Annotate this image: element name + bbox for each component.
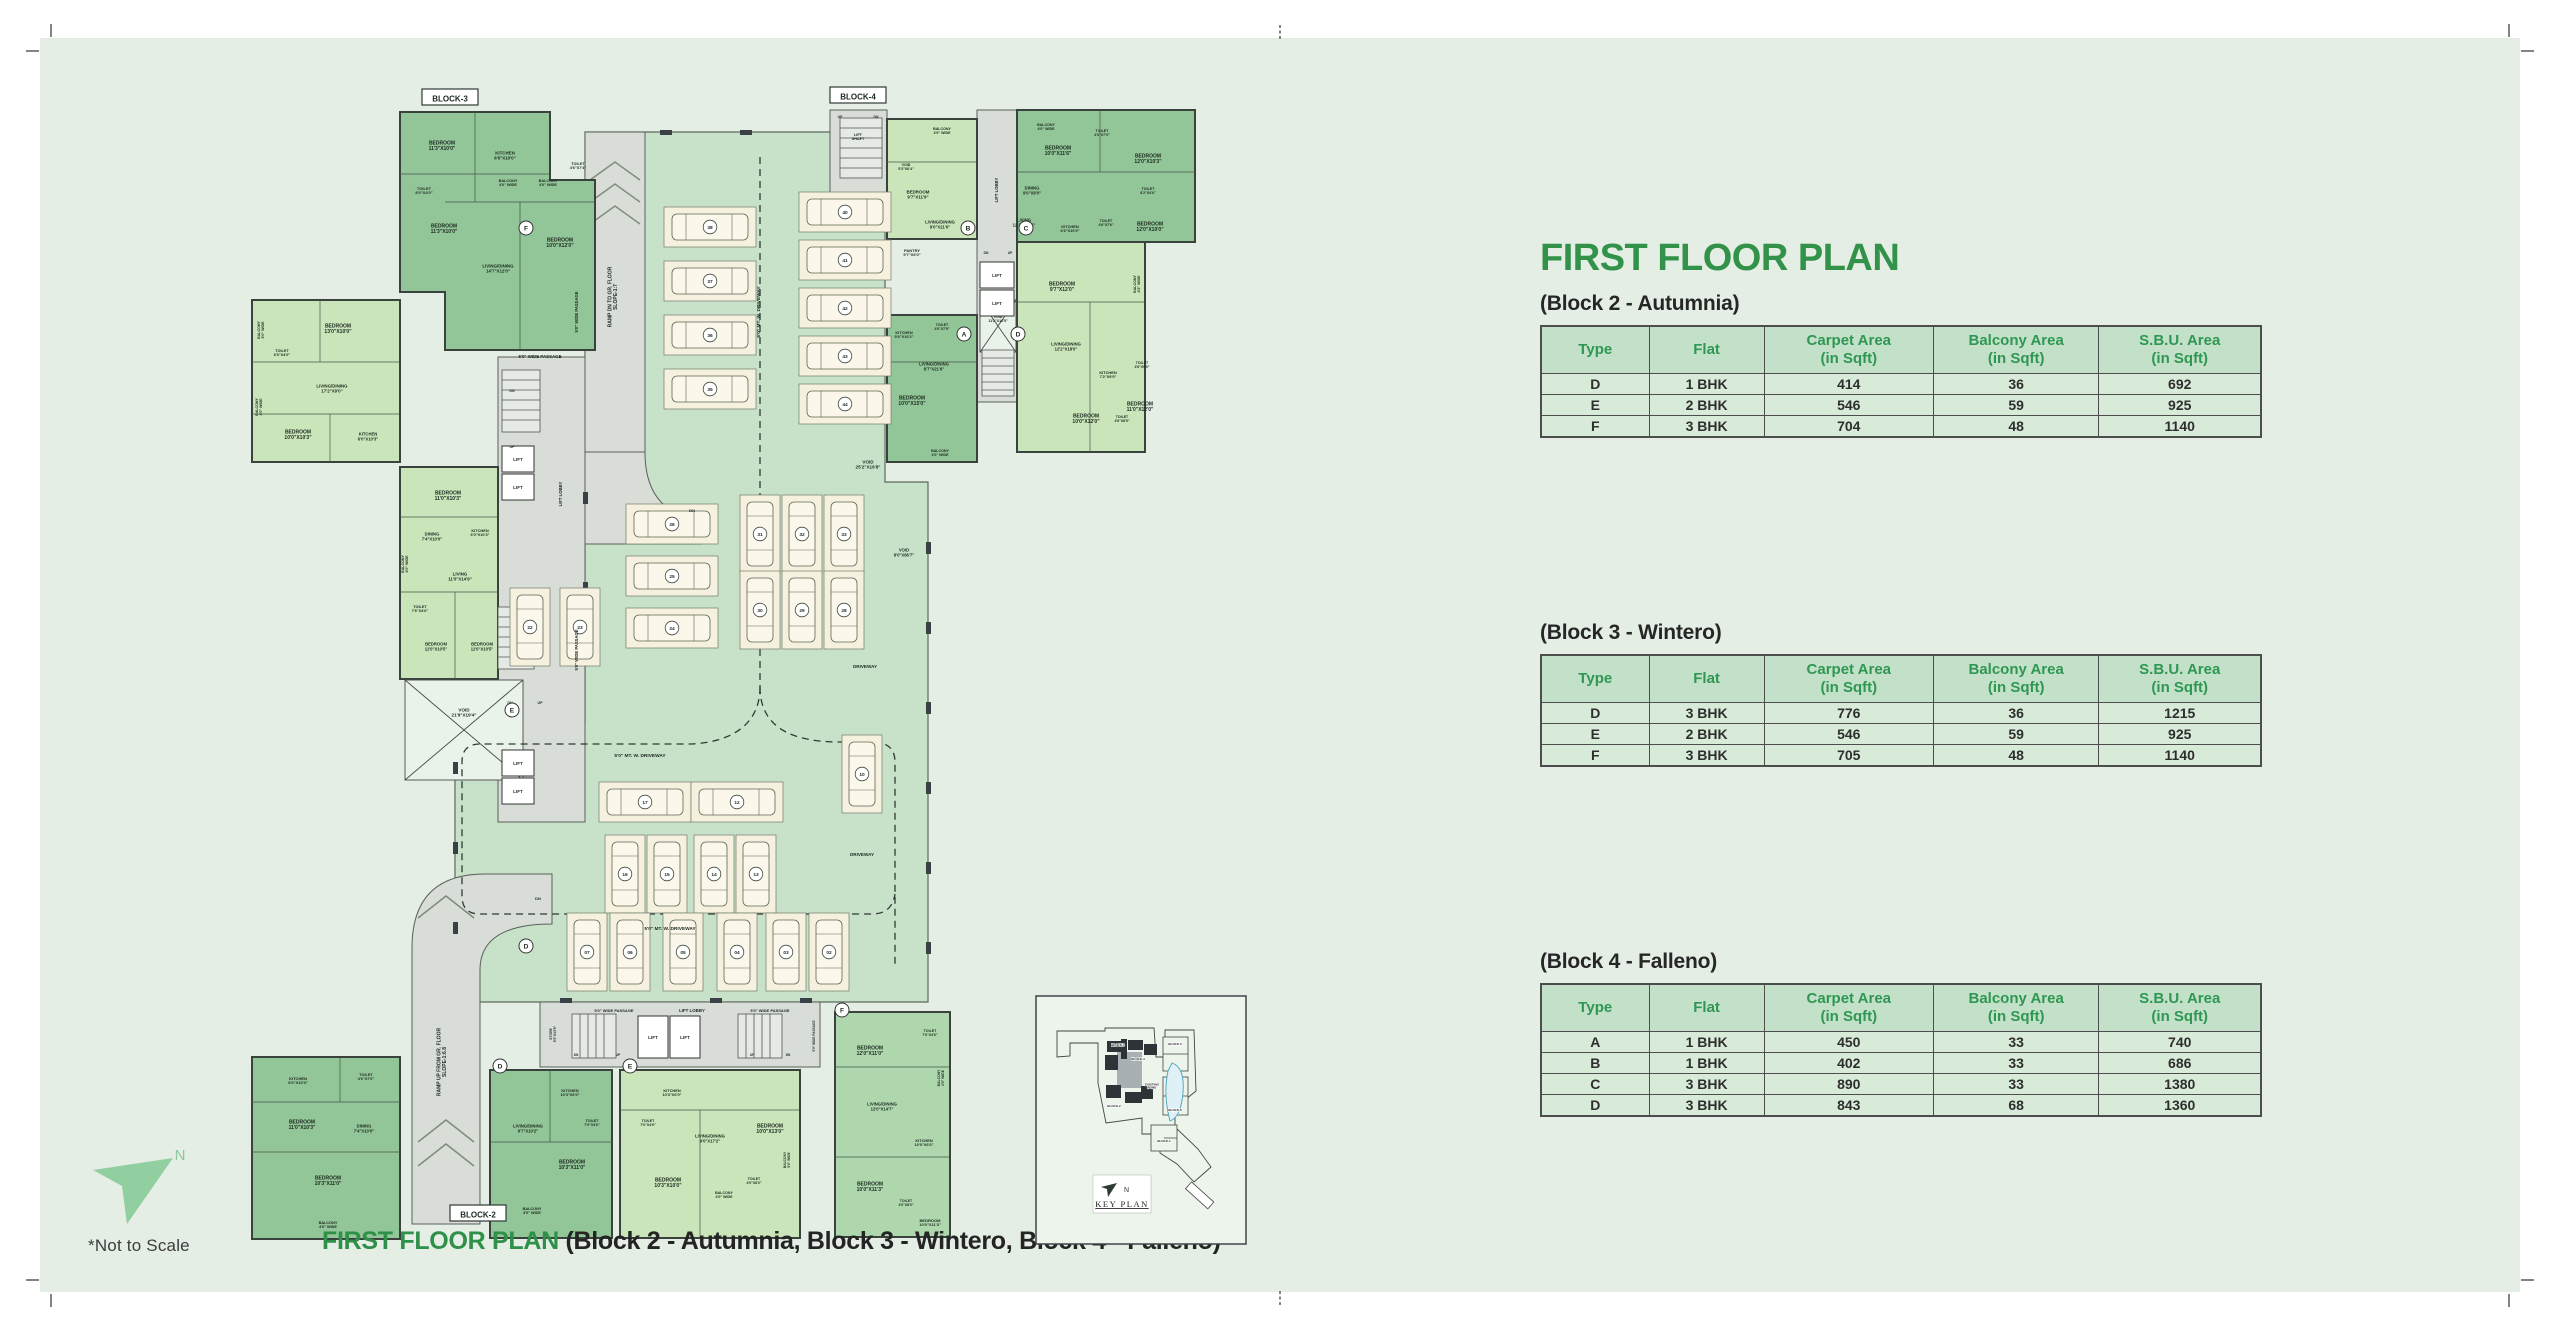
parking-spot-number: 13 bbox=[753, 872, 759, 878]
block3-area-table: TypeFlatCarpet Area (in Sqft)Balcony Are… bbox=[1540, 654, 2262, 767]
plan-label: UP bbox=[538, 701, 544, 705]
plan-label: BEDROOM10'3"X11'0" bbox=[315, 1175, 342, 1187]
plan-label: KITCHEN6'6"X10'0" bbox=[1061, 224, 1080, 233]
table-cell: 1 BHK bbox=[1649, 1032, 1764, 1053]
svg-text:B: B bbox=[966, 225, 971, 232]
unit-type-circle: E bbox=[505, 703, 519, 717]
unit-type-circle: C bbox=[1019, 221, 1033, 235]
north-arrow: N bbox=[85, 1142, 195, 1230]
svg-text:E: E bbox=[628, 1063, 633, 1070]
table-cell: 890 bbox=[1764, 1074, 1933, 1095]
block-tag: BLOCK-4 bbox=[830, 87, 886, 103]
table-cell: 48 bbox=[1933, 416, 2099, 438]
parking-spot: 02 bbox=[809, 913, 849, 991]
plan-label: TOILET4'6"X7'0" bbox=[358, 1073, 375, 1081]
block3-caption: (Block 3 - Wintero) bbox=[1540, 621, 2264, 645]
table-cell: 36 bbox=[1933, 374, 2099, 395]
svg-text:D: D bbox=[524, 943, 529, 950]
table-row: D3 BHK776361215 bbox=[1541, 703, 2261, 724]
parking-spot-number: 32 bbox=[799, 532, 805, 538]
plan-label: BALCONY4'0" WIDE bbox=[933, 127, 951, 135]
table-cell: 3 BHK bbox=[1649, 416, 1764, 438]
table-cell: 740 bbox=[2099, 1032, 2261, 1053]
table-cell: 843 bbox=[1764, 1095, 1933, 1117]
keyplan-label: BLOCK-2 bbox=[1107, 1104, 1121, 1108]
parking-spot-number: 14 bbox=[711, 872, 717, 878]
parking-spot: 40 bbox=[799, 192, 891, 232]
north-label: N bbox=[175, 1147, 186, 1164]
plan-label: TOILET4'6"X7'0" bbox=[1094, 129, 1110, 137]
column-header: Type bbox=[1541, 655, 1649, 703]
parking-spot: 31 bbox=[740, 495, 780, 573]
plan-label: BEDROOM10'3"X10'0" bbox=[654, 1177, 682, 1189]
parking-spot: 44 bbox=[799, 384, 891, 424]
table-cell: 33 bbox=[1933, 1074, 2099, 1095]
column-header: Flat bbox=[1649, 655, 1764, 703]
svg-text:E: E bbox=[510, 707, 515, 714]
table-cell: 59 bbox=[1933, 395, 2099, 416]
plan-label: BEDROOM10'0"X11'3" bbox=[857, 1181, 884, 1193]
parking-spot-number: 03 bbox=[783, 950, 789, 956]
parking-spot: 28 bbox=[824, 571, 864, 649]
column-header: S.B.U. Area (in Sqft) bbox=[2099, 984, 2261, 1032]
north-arrow-glyph bbox=[93, 1158, 173, 1224]
lift-label: LIFT bbox=[513, 761, 523, 766]
parking-spot-number: 22 bbox=[527, 625, 533, 631]
table-cell: 686 bbox=[2099, 1053, 2261, 1074]
plan-label: BEDROOM11'0"X10'5" bbox=[425, 642, 448, 652]
plan-label: BALCONY4'0" WIDE bbox=[255, 398, 263, 416]
parking-spot: 32 bbox=[782, 495, 822, 573]
plan-label: UP bbox=[1008, 251, 1013, 255]
plan-label: 5'0" WIDE PASSAGE bbox=[574, 629, 579, 670]
column-header: Carpet Area (in Sqft) bbox=[1764, 655, 1933, 703]
column-header: Balcony Area (in Sqft) bbox=[1933, 655, 2099, 703]
block4-caption: (Block 4 - Falleno) bbox=[1540, 950, 2264, 974]
table-cell: 1 BHK bbox=[1649, 1053, 1764, 1074]
parking-spot-number: 10 bbox=[859, 772, 865, 778]
table-cell: 36 bbox=[1933, 703, 2099, 724]
keyplan-label: BLOCK-5 bbox=[1168, 1042, 1182, 1046]
plan-label: TOILET7'0"X4'6" bbox=[640, 1119, 656, 1127]
parking-spot-number: 30 bbox=[757, 608, 763, 614]
parking-spot: 12 bbox=[691, 782, 783, 822]
parking-spot-number: 12 bbox=[734, 800, 740, 806]
table-cell: 68 bbox=[1933, 1095, 2099, 1117]
parking-spot-number: 29 bbox=[799, 608, 805, 614]
column-header: Type bbox=[1541, 984, 1649, 1032]
table-cell: 1140 bbox=[2099, 745, 2261, 767]
plan-label: 5'0" WIDE PASSAGE bbox=[574, 291, 579, 332]
plan-label: BALCONY5'0" WIDE bbox=[783, 1151, 791, 1168]
plan-label: BEDROOM10'3"X11'0" bbox=[559, 1159, 586, 1171]
parking-spot: 14 bbox=[694, 835, 734, 913]
parking-spot-number: 36 bbox=[707, 333, 713, 339]
keyplan-label: BLOCK-1 bbox=[1157, 1139, 1171, 1143]
plan-label: LIVING/DINING12'0"X14'7" bbox=[867, 1102, 897, 1112]
table-cell: D bbox=[1541, 703, 1649, 724]
page-title: FIRST FLOOR PLAN bbox=[1540, 237, 2264, 280]
parking-spot-number: 07 bbox=[584, 950, 590, 956]
unit-type-circle: D bbox=[519, 939, 533, 953]
parking-spot-number: 42 bbox=[842, 306, 848, 312]
plan-label: DN bbox=[574, 1053, 579, 1057]
column-header: Balcony Area (in Sqft) bbox=[1933, 984, 2099, 1032]
plan-label: BEDROOM10'0"X10'3" bbox=[284, 429, 312, 441]
keyplan-label: BLOCK-4 bbox=[1131, 1057, 1145, 1061]
table-cell: 925 bbox=[2099, 395, 2261, 416]
table-row: B1 BHK40233686 bbox=[1541, 1053, 2261, 1074]
table-cell: E bbox=[1541, 724, 1649, 745]
parking-spot: 25 bbox=[626, 556, 718, 596]
plan-label: TOILET7'0"X4'6" bbox=[922, 1029, 938, 1037]
keyplan-north-label: N bbox=[1124, 1187, 1129, 1194]
plan-label: BEDROOM11'3"X10'0" bbox=[431, 223, 458, 235]
unit-type-circle: E bbox=[623, 1059, 637, 1073]
plan-label: 5'0" WIDE PASSAGE bbox=[594, 1008, 634, 1013]
table-cell: 705 bbox=[1764, 745, 1933, 767]
plan-label: BEDROOM10'0"X12'0" bbox=[1072, 413, 1100, 425]
parking-spot-number: 38 bbox=[707, 225, 713, 231]
column-header: Flat bbox=[1649, 326, 1764, 374]
table-cell: 1215 bbox=[2099, 703, 2261, 724]
column-header: Flat bbox=[1649, 984, 1764, 1032]
parking-spot-number: 44 bbox=[842, 402, 848, 408]
cluster-block2-d bbox=[490, 1070, 612, 1238]
parking-spot: 29 bbox=[782, 571, 822, 649]
block-tag: BLOCK-2 bbox=[450, 1205, 506, 1221]
plan-label: BEDROOM11'3"X10'0" bbox=[429, 140, 456, 152]
parking-spot-number: 15 bbox=[664, 872, 670, 878]
plan-label: BALCONY4'6" WIDE bbox=[1133, 275, 1141, 293]
plan-label: UP bbox=[838, 115, 843, 119]
parking-spot: 07 bbox=[567, 913, 607, 991]
keyplan-label: BLOCK-3 bbox=[1111, 1043, 1125, 1047]
lift-label: LIFT bbox=[680, 1035, 690, 1040]
parking-spot: 41 bbox=[799, 240, 891, 280]
table-row: E2 BHK54659925 bbox=[1541, 724, 2261, 745]
table-cell: 1 BHK bbox=[1649, 374, 1764, 395]
plan-label: 5'0" MT. W. DRIVEWAY bbox=[614, 753, 666, 759]
table-cell: 704 bbox=[1764, 416, 1933, 438]
table-row: A1 BHK45033740 bbox=[1541, 1032, 2261, 1053]
table-cell: 3 BHK bbox=[1649, 1074, 1764, 1095]
plan-label: BALCONY4'0" WIDE bbox=[715, 1191, 733, 1199]
plan-label: PANTRY9'7"X6'0" bbox=[903, 248, 920, 257]
parking-spot: 42 bbox=[799, 288, 891, 328]
plan-label: LIVING/DINING14'7"X12'0" bbox=[482, 264, 514, 274]
parking-spot: 30 bbox=[740, 571, 780, 649]
lift-label: LIFT bbox=[992, 301, 1002, 306]
parking-spot: 33 bbox=[824, 495, 864, 573]
block2-caption: (Block 2 - Autumnia) bbox=[1540, 292, 2264, 316]
parking-spot: 38 bbox=[664, 207, 756, 247]
plan-label: KITCHEN10'0"X6'6" bbox=[915, 1138, 934, 1147]
plan-label: BEDROOM10'0"X11'6" bbox=[1045, 145, 1072, 157]
cluster-block2-f bbox=[835, 1012, 950, 1237]
plan-label: 5'0" WIDE PASSAGE bbox=[812, 1020, 816, 1051]
table-cell: A bbox=[1541, 1032, 1649, 1053]
parking-spot: 15 bbox=[647, 835, 687, 913]
parking-spot: 23 bbox=[560, 588, 600, 666]
plan-label: BALCONY4'0" WIDE bbox=[523, 1207, 542, 1215]
parking-spot-number: 33 bbox=[841, 532, 847, 538]
parking-spot-number: 02 bbox=[826, 950, 832, 956]
plan-label: TOILET4'6"X7'6" bbox=[1098, 219, 1113, 227]
plan-label: TOILET4'0"X8'0" bbox=[898, 1199, 913, 1207]
parking-spot: 13 bbox=[736, 835, 776, 913]
parking-spot: 26 bbox=[626, 504, 718, 544]
plan-label: BEDROOM11'0"X10'3" bbox=[289, 1119, 316, 1131]
lift-label: LIFT bbox=[648, 1035, 658, 1040]
unit-type-circle: A bbox=[957, 327, 971, 341]
block2-area-table: TypeFlatCarpet Area (in Sqft)Balcony Are… bbox=[1540, 325, 2262, 438]
column-header: Type bbox=[1541, 326, 1649, 374]
plan-label: KITCHEN10'3"X6'0" bbox=[663, 1088, 682, 1097]
plan-label: 5'0" WIDE PASSAGE bbox=[750, 1008, 790, 1013]
plan-label: DN bbox=[689, 508, 695, 513]
svg-text:D: D bbox=[1016, 331, 1021, 338]
svg-text:D: D bbox=[498, 1063, 503, 1070]
block-tag: BLOCK-3 bbox=[422, 89, 478, 105]
table-cell: 414 bbox=[1764, 374, 1933, 395]
plan-label: TOILET8'0"X4'0" bbox=[415, 186, 432, 195]
svg-text:C: C bbox=[1024, 225, 1029, 232]
unit-type-circle: B bbox=[961, 221, 975, 235]
parking-spot-number: 37 bbox=[707, 279, 713, 285]
unit-type-circle: D bbox=[1011, 327, 1025, 341]
table-cell: 1380 bbox=[2099, 1074, 2261, 1095]
unit-type-circle: D bbox=[493, 1059, 507, 1073]
column-header: S.B.U. Area (in Sqft) bbox=[2099, 326, 2261, 374]
table-cell: D bbox=[1541, 1095, 1649, 1117]
block-tag-label: BLOCK-3 bbox=[432, 95, 468, 104]
not-to-scale-note: *Not to Scale bbox=[88, 1236, 190, 1256]
table-cell: 2 BHK bbox=[1649, 395, 1764, 416]
block-tag-label: BLOCK-4 bbox=[840, 93, 876, 102]
table-cell: 3 BHK bbox=[1649, 703, 1764, 724]
plan-label: TOILET7'6"X4'6" bbox=[412, 605, 429, 613]
plan-label: BEDROOM10'0"X12'0" bbox=[546, 237, 574, 249]
parking-spot: 17 bbox=[599, 782, 691, 822]
svg-text:A: A bbox=[962, 331, 967, 338]
plan-label: DN bbox=[786, 1053, 791, 1057]
table-cell: 48 bbox=[1933, 745, 2099, 767]
plan-label: KITCHEN6'6"X10'0" bbox=[494, 151, 515, 161]
plan-label: TOILET4'6"X9'0" bbox=[1134, 361, 1149, 369]
plan-label: 5'0" WIDE PASSAGE bbox=[518, 354, 561, 359]
parking-spot-number: 06 bbox=[627, 950, 633, 956]
table-row: C3 BHK890331380 bbox=[1541, 1074, 2261, 1095]
plan-label: DINING7'4"X10'0" bbox=[422, 532, 442, 542]
plan-label: UP bbox=[510, 445, 516, 449]
plan-label: DRIVEWAY bbox=[850, 852, 874, 857]
table-cell: D bbox=[1541, 374, 1649, 395]
svg-text:F: F bbox=[840, 1007, 844, 1014]
lift-label: LIFT bbox=[513, 789, 523, 794]
plan-label: LIVING/DINING12'2"X18'0" bbox=[1051, 342, 1081, 352]
svg-text:F: F bbox=[524, 225, 528, 232]
cluster-block2-e bbox=[620, 1070, 800, 1238]
table-cell: F bbox=[1541, 745, 1649, 767]
plan-label: BALCONY4'0" WIDE bbox=[931, 449, 949, 457]
table-cell: 33 bbox=[1933, 1032, 2099, 1053]
table-row: F3 BHK704481140 bbox=[1541, 416, 2261, 438]
plan-label: KITCHEN6'0"X10'3" bbox=[358, 432, 378, 442]
parking-spot: 10 bbox=[842, 735, 882, 813]
unit-type-circle: F bbox=[519, 221, 533, 235]
plan-label: 5'0" MT. W. DRIVEWAY bbox=[644, 926, 696, 932]
table-cell: 59 bbox=[1933, 724, 2099, 745]
table-row: F3 BHK705481140 bbox=[1541, 745, 2261, 767]
table-cell: E bbox=[1541, 395, 1649, 416]
table-cell: 776 bbox=[1764, 703, 1933, 724]
parking-spot-number: 43 bbox=[842, 354, 848, 360]
table-cell: 402 bbox=[1764, 1053, 1933, 1074]
plan-label: BEDROOM9'7"X12'0" bbox=[1049, 281, 1075, 293]
plan-label: BEDROOM10'0"X15'0" bbox=[898, 395, 926, 407]
block-tag-label: BLOCK-2 bbox=[460, 1211, 496, 1220]
parking-spot-number: 17 bbox=[642, 800, 648, 806]
parking-spot-number: 28 bbox=[841, 608, 847, 614]
table-cell: 1140 bbox=[2099, 416, 2261, 438]
parking-spot: 16 bbox=[605, 835, 645, 913]
table-cell: 925 bbox=[2099, 724, 2261, 745]
plan-label: BEDROOM10'0"X13'0" bbox=[756, 1123, 784, 1135]
plan-label: LIFT LOBBY bbox=[558, 481, 563, 506]
area-statement-panel: FIRST FLOOR PLAN (Block 2 - Autumnia) Ty… bbox=[1540, 237, 2264, 1117]
parking-spot-number: 04 bbox=[734, 950, 740, 956]
table-cell: 2 BHK bbox=[1649, 724, 1764, 745]
parking-spot: 06 bbox=[610, 913, 650, 991]
keyplan-title: KEY PLAN bbox=[1095, 1199, 1148, 1209]
lift-label: LIFT bbox=[513, 485, 523, 490]
table-row: D1 BHK41436692 bbox=[1541, 374, 2261, 395]
plan-label: DN bbox=[509, 389, 515, 393]
parking-spot: 37 bbox=[664, 261, 756, 301]
table-cell: 1360 bbox=[2099, 1095, 2261, 1117]
parking-spot-number: 24 bbox=[669, 626, 675, 632]
column-header: S.B.U. Area (in Sqft) bbox=[2099, 655, 2261, 703]
parking-spot: 24 bbox=[626, 608, 718, 648]
plan-label: BALCONY4'0" WIDE bbox=[401, 555, 409, 573]
plan-label: BEDROOM12'0"X10'3" bbox=[1134, 153, 1162, 165]
table-cell: 3 BHK bbox=[1649, 1095, 1764, 1117]
plan-label: TOILET4'0"X8'0" bbox=[746, 1177, 761, 1185]
plan-label: BEDROOM12'0"X10'0" bbox=[1136, 221, 1164, 233]
column-header: Carpet Area (in Sqft) bbox=[1764, 984, 1933, 1032]
lift-label: LIFT bbox=[513, 457, 523, 462]
plan-label: DINING9'0"X8'0" bbox=[1023, 186, 1041, 196]
parking-spot: 35 bbox=[664, 369, 756, 409]
table-cell: 546 bbox=[1764, 395, 1933, 416]
plan-label: TOILET7'0"X4'6" bbox=[584, 1119, 600, 1127]
plan-label: DRIVEWAY bbox=[853, 664, 877, 669]
plan-label: TOILET4'6"X7'4" bbox=[570, 162, 587, 170]
plan-label: BEDROOM11'0"X10'3" bbox=[435, 490, 462, 502]
parking-spot: 22 bbox=[510, 588, 550, 666]
plan-label: TOILET4'0"X7'5" bbox=[934, 323, 949, 331]
plan-label: DN bbox=[535, 896, 541, 901]
parking-spot: 36 bbox=[664, 315, 756, 355]
parking-spot-number: 41 bbox=[842, 258, 848, 264]
plan-label: BALCONY4'0" WIDE bbox=[937, 1069, 945, 1087]
parking-spot-number: 05 bbox=[680, 950, 686, 956]
plan-label: TOILET8'2"X4'6" bbox=[1140, 187, 1156, 195]
plan-label: BALCONY4'0" WIDE bbox=[539, 179, 558, 187]
page: LIFT LIFT LIFT LIFT LIFT LIFT LIFT LIFT … bbox=[0, 0, 2560, 1331]
block4-area-table: TypeFlatCarpet Area (in Sqft)Balcony Are… bbox=[1540, 983, 2262, 1117]
parking-spot-number: 16 bbox=[622, 872, 628, 878]
parking-spot-number: 31 bbox=[757, 532, 763, 538]
plan-label: LIFT LOBBY bbox=[994, 177, 999, 202]
parking-spot-number: 26 bbox=[669, 522, 675, 528]
column-header: Balcony Area (in Sqft) bbox=[1933, 326, 2099, 374]
unit-type-circle: F bbox=[835, 1003, 849, 1017]
table-cell: 33 bbox=[1933, 1053, 2099, 1074]
parking-spot: 04 bbox=[717, 913, 757, 991]
plan-label: TOILET6'0"X4'0" bbox=[274, 349, 291, 357]
table-row: E2 BHK54659925 bbox=[1541, 395, 2261, 416]
plan-label: BALCONY4'0" WIDE bbox=[1037, 123, 1055, 131]
plan-label: KITCHEN6'0"X10'3" bbox=[288, 1076, 308, 1085]
plan-label: KITCHEN6'0"X10'3" bbox=[471, 528, 490, 537]
parking-spot-number: 35 bbox=[707, 387, 713, 393]
plan-label: DINING7'4"X10'0" bbox=[354, 1124, 374, 1134]
plan-label: DN bbox=[984, 251, 989, 255]
parking-spot: 05 bbox=[663, 913, 703, 991]
table-cell: F bbox=[1541, 416, 1649, 438]
parking-spot: 43 bbox=[799, 336, 891, 376]
plan-label: 5'0" MT. W. DRIVEWAY bbox=[756, 286, 762, 338]
plan-label: DN bbox=[874, 115, 879, 119]
lift-label: LIFT bbox=[992, 273, 1002, 278]
plan-label: KITCHEN7'2"X9'0" bbox=[1099, 370, 1116, 379]
table-cell: 546 bbox=[1764, 724, 1933, 745]
table-cell: B bbox=[1541, 1053, 1649, 1074]
plan-label: BEDROOM9'7"X11'9" bbox=[907, 190, 930, 200]
plan-label: BALCONY5'0" WIDE bbox=[257, 321, 265, 339]
plan-label: BEDROOM11'0"X12'0" bbox=[1127, 401, 1154, 413]
plan-label: KITCHEN5'6"X10'2" bbox=[895, 330, 914, 339]
column-header: Carpet Area (in Sqft) bbox=[1764, 326, 1933, 374]
plan-label: LIFT LOBBY bbox=[679, 1008, 705, 1013]
table-cell: 450 bbox=[1764, 1032, 1933, 1053]
plan-label: BEDROOM12'0"X11'0" bbox=[857, 1045, 884, 1057]
keyplan-label: BLOCK-6 bbox=[1168, 1108, 1182, 1112]
plan-label: TOILET4'6"X8'5" bbox=[1114, 415, 1129, 423]
plan-label: BALCONY4'0" WIDE bbox=[499, 179, 518, 187]
parking-spot-number: 25 bbox=[669, 574, 675, 580]
table-cell: C bbox=[1541, 1074, 1649, 1095]
plan-label: BEDROOM11'0"X10'5" bbox=[471, 642, 494, 652]
table-cell: 692 bbox=[2099, 374, 2261, 395]
plan-caption-title: FIRST FLOOR PLAN bbox=[322, 1227, 566, 1255]
plan-label: KITCHEN10'3"X6'0" bbox=[561, 1088, 580, 1097]
table-cell: 3 BHK bbox=[1649, 745, 1764, 767]
table-row: D3 BHK843681360 bbox=[1541, 1095, 2261, 1117]
plan-label: BEDROOM13'0"X10'0" bbox=[324, 323, 352, 335]
key-plan-inset: N KEY PLAN BLOCK-3BLOCK-4BLOCK-2BLOCK-5B… bbox=[1035, 995, 1247, 1245]
cluster-bottom-left bbox=[252, 1057, 400, 1239]
plan-label: BEDROOM10'0"X11'3" bbox=[919, 1218, 941, 1227]
parking-spot: 03 bbox=[766, 913, 806, 991]
parking-spot-number: 40 bbox=[842, 210, 848, 216]
